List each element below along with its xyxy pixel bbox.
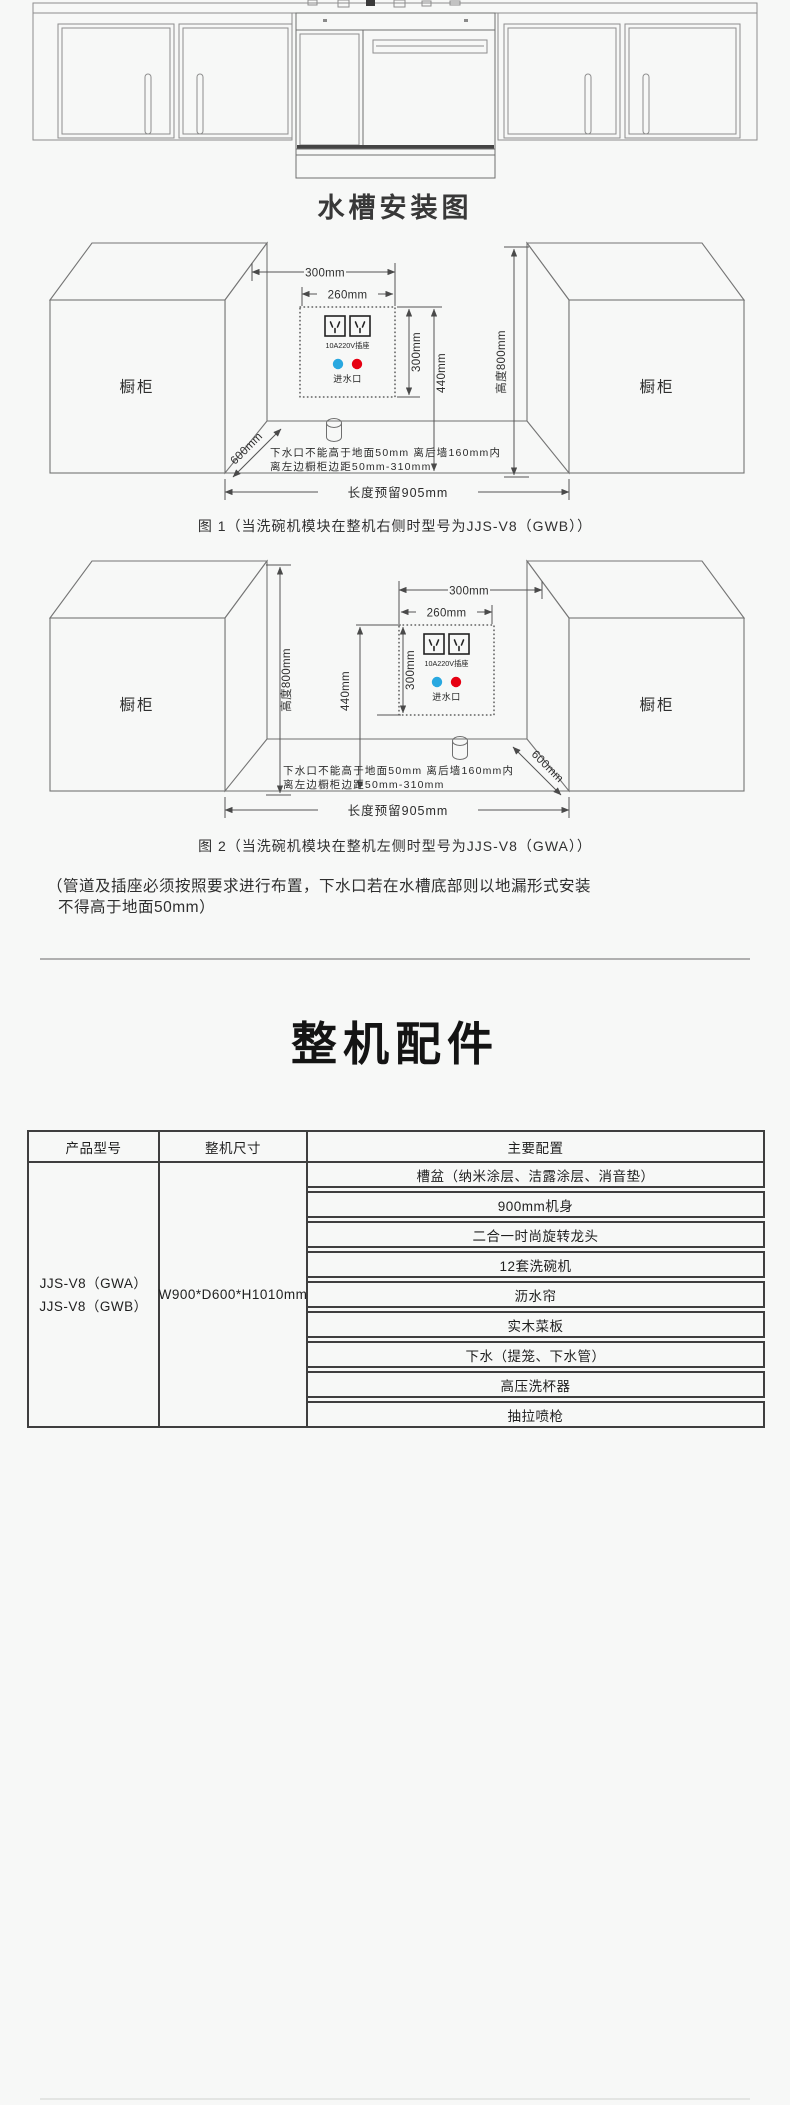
fig2-diagram: 橱柜 橱柜 10A220V插座 进水口 [30, 554, 760, 828]
door-handle [585, 74, 591, 134]
unit-lower-drawer [296, 155, 495, 178]
fig1-caption: 图 1（当洗碗机模块在整机右侧时型号为JJS-V8（GWB）） [0, 516, 790, 536]
drain-pipe-icon [327, 419, 342, 442]
table-header-model: 产品型号 [27, 1130, 160, 1163]
cabinet-right-iso: 橱柜 [527, 243, 744, 473]
model-name: JJS-V8（GWB） [39, 1295, 147, 1318]
svg-text:高度800mm: 高度800mm [279, 648, 293, 711]
table-cell-models: JJS-V8（GWA） JJS-V8（GWB） [27, 1161, 160, 1428]
section-divider [40, 958, 750, 960]
table-config-column: 槽盆（纳米涂层、洁露涂层、消音垫） 900mm机身 二合一时尚旋转龙头 12套洗… [306, 1161, 765, 1428]
svg-text:440mm: 440mm [340, 671, 352, 711]
config-row: 下水（提笼、下水管） [306, 1341, 765, 1368]
cabinet-label: 橱柜 [639, 378, 674, 396]
dimension-height-800mm: 高度800mm [494, 247, 529, 477]
svg-text:高度800mm: 高度800mm [494, 330, 508, 393]
fig2-caption: 图 2（当洗碗机模块在整机左侧时型号为JJS-V8（GWA）） [0, 836, 790, 856]
product-detail-page: 水槽安装图 橱柜 橱柜 [0, 0, 790, 2105]
svg-text:300mm: 300mm [405, 650, 417, 690]
svg-text:长度预留905mm: 长度预留905mm [348, 803, 449, 818]
dimension-reserved-length: 长度预留905mm [225, 797, 569, 818]
bottom-divider [40, 2098, 750, 2100]
kitchen-front-view-drawing [0, 0, 790, 190]
cold-water-inlet-dot [333, 359, 343, 369]
svg-text:440mm: 440mm [436, 353, 448, 393]
config-row: 沥水帘 [306, 1281, 765, 1308]
install-note-line2: 不得高于地面50mm） [58, 895, 215, 917]
config-row: 实木菜板 [306, 1311, 765, 1338]
dimension-300mm-top: 300mm [252, 263, 395, 306]
svg-text:长度预留905mm: 长度预留905mm [348, 485, 449, 500]
table-header-size: 整机尺寸 [158, 1130, 308, 1163]
config-row: 900mm机身 [306, 1191, 765, 1218]
drain-note-line2: 离左边橱柜边距50mm-310mm [270, 460, 432, 473]
svg-text:300mm: 300mm [411, 332, 423, 372]
hot-water-inlet-dot [352, 359, 362, 369]
left-cabinet-doors [33, 13, 292, 140]
config-row: 高压洗杯器 [306, 1371, 765, 1398]
door-handle [145, 74, 151, 134]
cabinet-label: 橱柜 [119, 696, 154, 714]
sink-unit-front [296, 13, 495, 178]
socket-label: 10A220V插座 [326, 341, 370, 350]
config-row: 二合一时尚旋转龙头 [306, 1221, 765, 1248]
dimension-height-800mm: 高度800mm [266, 565, 293, 795]
countertop [33, 0, 757, 13]
svg-text:300mm: 300mm [449, 586, 489, 598]
dimension-reserved-length: 长度预留905mm [225, 479, 569, 500]
cabinet-right-iso: 橱柜 [527, 561, 744, 791]
cabinet-label: 橱柜 [119, 378, 154, 396]
water-inlet-label: 进水口 [432, 691, 461, 702]
cabinet-left-iso: 橱柜 [50, 243, 267, 473]
config-row: 抽拉喷枪 [306, 1401, 765, 1428]
dimension-300mm-vertical: 300mm [356, 625, 417, 715]
door-handle [197, 74, 203, 134]
cabinet-label: 橱柜 [639, 696, 674, 714]
drain-note-line1: 下水口不能高于地面50mm 离后墙160mm内 [270, 446, 501, 459]
socket-label: 10A220V插座 [425, 659, 469, 668]
drain-note-line2: 离左边橱柜边距50mm-310mm [283, 778, 445, 791]
svg-text:300mm: 300mm [305, 268, 345, 280]
config-row: 12套洗碗机 [306, 1251, 765, 1278]
table-header-config: 主要配置 [306, 1130, 765, 1163]
cabinet-left-iso: 橱柜 [50, 561, 267, 791]
section-title-sink-install: 水槽安装图 [0, 186, 790, 225]
socket-zone: 10A220V插座 进水口 [300, 307, 395, 397]
fig1-diagram: 橱柜 橱柜 10A220V插座 进水口 [30, 236, 760, 510]
config-row: 槽盆（纳米涂层、洁露涂层、消音垫） [306, 1161, 765, 1188]
right-cabinet-doors [498, 13, 757, 140]
dimension-260mm: 260mm [401, 605, 492, 624]
cold-water-inlet-dot [432, 677, 442, 687]
dimension-300mm-top: 300mm [399, 581, 542, 624]
hot-water-inlet-dot [451, 677, 461, 687]
door-handle [643, 74, 649, 134]
svg-text:260mm: 260mm [427, 608, 467, 620]
drain-note-line1: 下水口不能高于地面50mm 离后墙160mm内 [283, 764, 514, 777]
dimension-260mm: 260mm [302, 287, 393, 306]
table-cell-size: W900*D600*H1010mm [158, 1161, 308, 1428]
model-name: JJS-V8（GWA） [40, 1272, 148, 1295]
water-inlet-label: 进水口 [333, 373, 362, 384]
section-title-accessories: 整机配件 [0, 1008, 790, 1074]
drain-pipe-icon [453, 737, 468, 760]
svg-text:260mm: 260mm [328, 290, 368, 302]
install-note-line1: （管道及插座必须按照要求进行布置，下水口若在水槽底部则以地漏形式安装 [47, 874, 591, 896]
